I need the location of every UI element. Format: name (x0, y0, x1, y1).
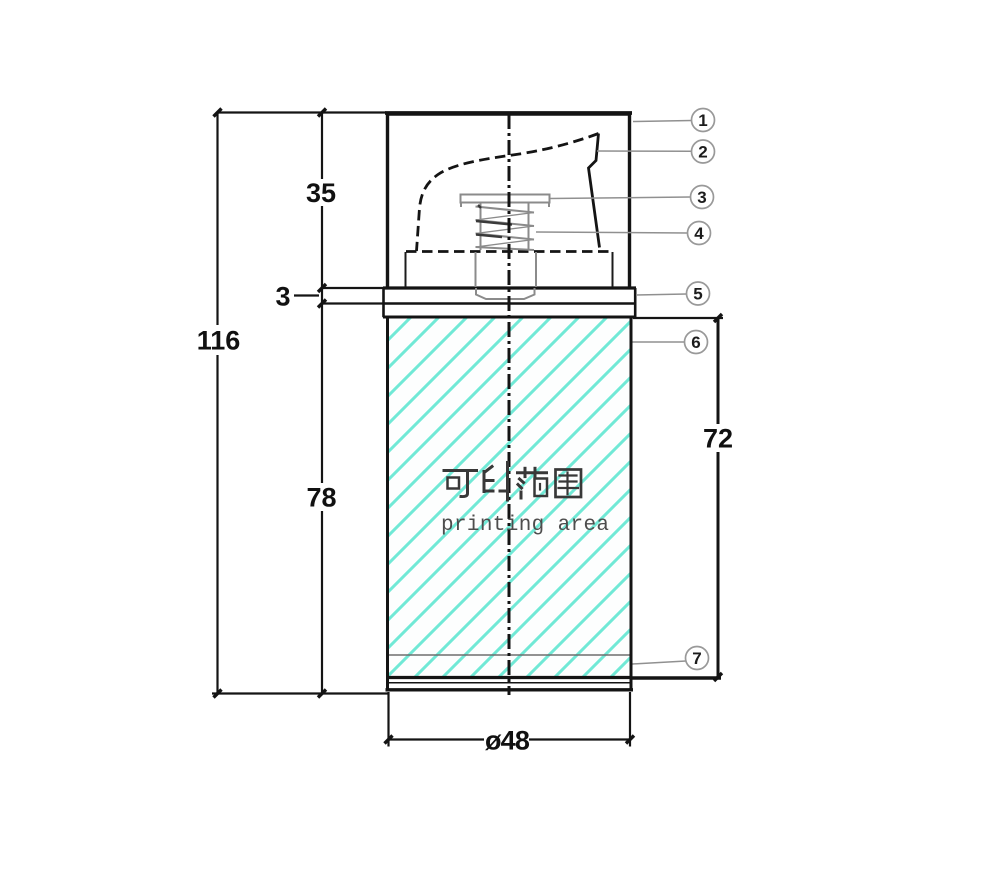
svg-text:6: 6 (691, 333, 700, 352)
svg-text:35: 35 (306, 178, 336, 208)
svg-text:printing area: printing area (441, 514, 609, 537)
svg-text:7: 7 (692, 649, 701, 668)
svg-text:1: 1 (698, 111, 707, 130)
svg-text:4: 4 (694, 224, 704, 243)
svg-text:72: 72 (703, 424, 733, 454)
svg-text:3: 3 (275, 282, 290, 312)
svg-text:3: 3 (697, 188, 706, 207)
svg-text:5: 5 (693, 285, 702, 304)
svg-text:116: 116 (197, 326, 241, 356)
svg-text:ø48: ø48 (485, 726, 530, 756)
svg-text:78: 78 (306, 483, 336, 513)
svg-text:2: 2 (698, 143, 707, 162)
